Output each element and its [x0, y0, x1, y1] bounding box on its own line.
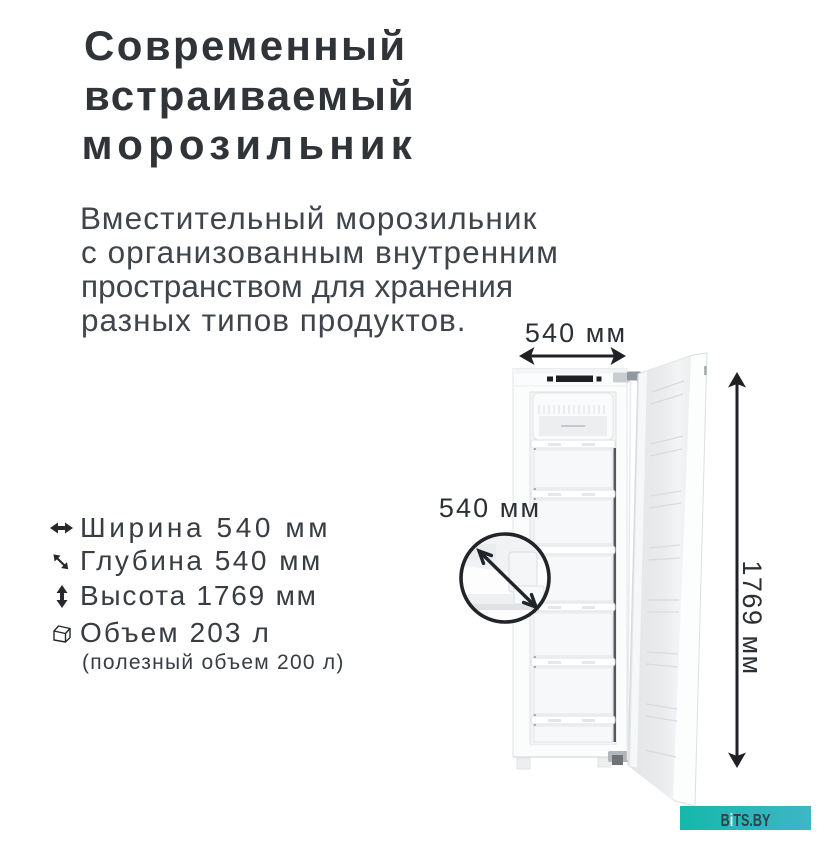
svg-text:1769 мм: 1769 мм: [737, 560, 767, 675]
svg-text:540 мм: 540 мм: [439, 493, 541, 523]
svg-text:540 мм: 540 мм: [525, 318, 627, 348]
